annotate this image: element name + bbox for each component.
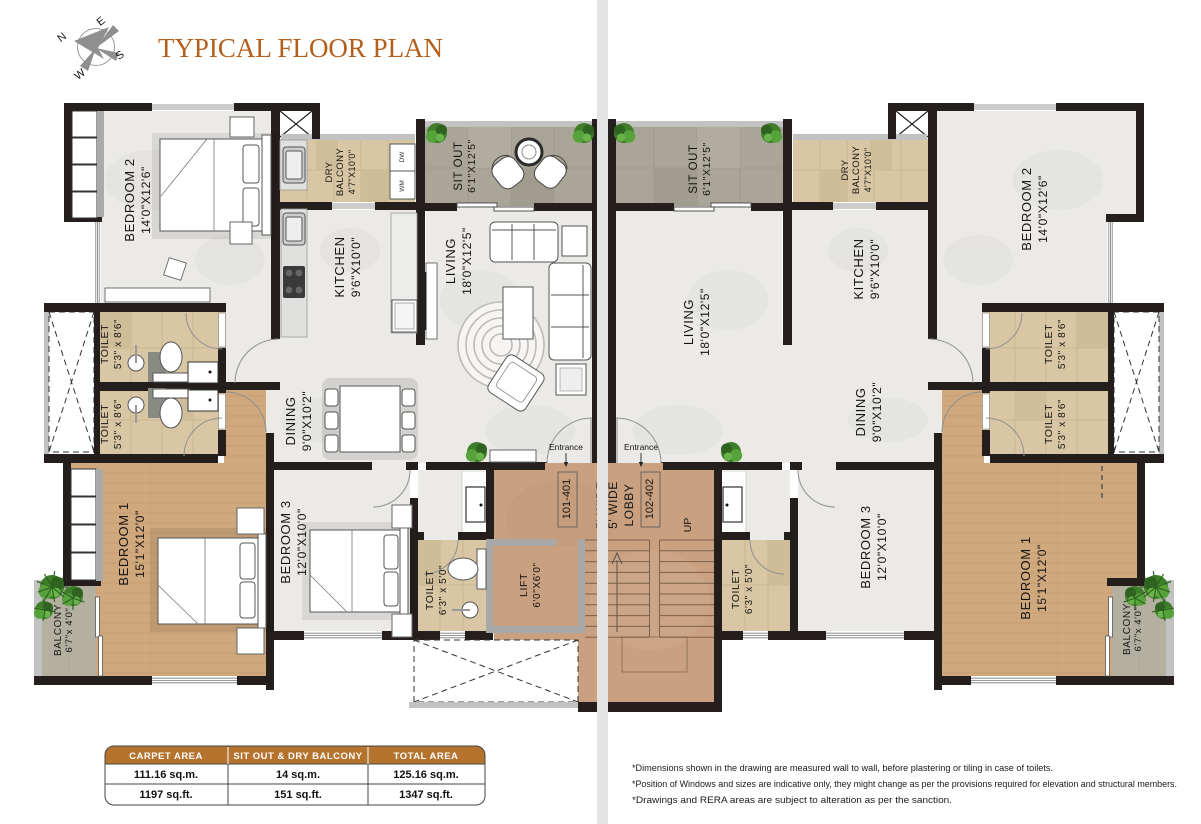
svg-text:Entrance: Entrance [624, 442, 658, 452]
svg-text:TOTAL AREA: TOTAL AREA [394, 751, 459, 762]
svg-text:SIT OUT & DRY BALCONY: SIT OUT & DRY BALCONY [233, 751, 362, 762]
svg-text:6'1"X12'5": 6'1"X12'5" [701, 142, 713, 196]
svg-text:LIVING: LIVING [443, 238, 458, 284]
svg-text:18'0"X12'5": 18'0"X12'5" [460, 227, 474, 295]
svg-text:DRY: DRY [324, 161, 335, 182]
svg-text:5'3" x 8'6": 5'3" x 8'6" [113, 319, 124, 369]
svg-text:*Position of Windows and sizes: *Position of Windows and sizes are indic… [632, 779, 1177, 789]
svg-text:102-402: 102-402 [644, 479, 656, 519]
svg-text:15'1"X12'0": 15'1"X12'0" [133, 510, 147, 578]
svg-text:14'0"X12'6": 14'0"X12'6" [1036, 175, 1050, 243]
svg-text:14'0"X12'6": 14'0"X12'6" [139, 166, 153, 234]
svg-text:9'6"X10'0": 9'6"X10'0" [868, 239, 882, 299]
svg-text:6'1"X12'5": 6'1"X12'5" [466, 139, 478, 193]
svg-text:*Dimensions shown in the drawi: *Dimensions shown in the drawing are mea… [632, 763, 1053, 773]
svg-text:14 sq.m.: 14 sq.m. [276, 769, 320, 781]
svg-text:TOILET: TOILET [730, 569, 742, 609]
svg-text:6'3" x 5'0": 6'3" x 5'0" [438, 565, 449, 615]
svg-text:5'3" x 8'6": 5'3" x 8'6" [1057, 399, 1068, 449]
svg-text:151 sq.ft.: 151 sq.ft. [274, 789, 322, 801]
svg-text:6'3" x 5'0": 6'3" x 5'0" [744, 564, 755, 614]
svg-text:BEDROOM 3: BEDROOM 3 [278, 500, 293, 583]
svg-text:5'3" x 8'6": 5'3" x 8'6" [113, 399, 124, 449]
svg-text:TOILET: TOILET [99, 324, 111, 364]
svg-text:TOILET: TOILET [1043, 324, 1055, 364]
svg-text:18'0"X12'5": 18'0"X12'5" [698, 288, 712, 356]
svg-text:SIT OUT: SIT OUT [453, 141, 465, 190]
svg-text:125.16 sq.m.: 125.16 sq.m. [393, 769, 458, 781]
svg-text:BALCONY: BALCONY [335, 148, 346, 196]
svg-text:9'6"X10'0": 9'6"X10'0" [349, 237, 363, 297]
svg-text:DRY: DRY [840, 159, 851, 180]
svg-text:12'0"X10'0": 12'0"X10'0" [875, 513, 889, 581]
svg-text:TOILET: TOILET [424, 570, 436, 610]
svg-text:9'0"X10'2": 9'0"X10'2" [300, 391, 314, 451]
svg-text:4'7"X10'0": 4'7"X10'0" [347, 150, 357, 195]
svg-text:LIVING: LIVING [681, 299, 696, 345]
svg-text:*Drawings and RERA areas are s: *Drawings and RERA areas are subject to … [632, 795, 952, 805]
svg-text:DW: DW [399, 151, 406, 163]
svg-text:5' WIDE: 5' WIDE [606, 481, 620, 529]
svg-text:SIT OUT: SIT OUT [688, 144, 700, 193]
svg-text:1347 sq.ft.: 1347 sq.ft. [399, 789, 453, 801]
svg-text:15'1"X12'0": 15'1"X12'0" [1035, 544, 1049, 612]
svg-text:TOILET: TOILET [99, 404, 111, 444]
svg-text:BEDROOM 1: BEDROOM 1 [116, 502, 131, 585]
svg-text:LOBBY: LOBBY [622, 483, 636, 526]
svg-text:Entrance: Entrance [549, 442, 583, 452]
svg-text:BALCONY: BALCONY [1122, 603, 1133, 655]
svg-text:WM: WM [399, 180, 406, 192]
svg-text:BEDROOM 1: BEDROOM 1 [1018, 536, 1033, 619]
svg-text:TOILET: TOILET [1043, 404, 1055, 444]
svg-text:6'7"x 4'0": 6'7"x 4'0" [64, 608, 75, 653]
svg-text:4'7"X10'0": 4'7"X10'0" [863, 148, 873, 193]
svg-text:BALCONY: BALCONY [53, 604, 64, 656]
svg-text:5'3" x 8'6": 5'3" x 8'6" [1057, 319, 1068, 369]
svg-text:TYPICAL FLOOR PLAN: TYPICAL FLOOR PLAN [158, 33, 445, 63]
svg-text:CARPET AREA: CARPET AREA [129, 751, 203, 762]
svg-text:1197 sq.ft.: 1197 sq.ft. [139, 789, 192, 801]
svg-text:9'0"X10'2": 9'0"X10'2" [870, 382, 884, 442]
svg-text:BEDROOM 3: BEDROOM 3 [858, 505, 873, 588]
svg-text:KITCHEN: KITCHEN [332, 236, 347, 297]
svg-text:111.16 sq.m.: 111.16 sq.m. [134, 769, 198, 781]
svg-text:101-401: 101-401 [561, 479, 573, 519]
svg-text:6'0"X6'0": 6'0"X6'0" [532, 562, 543, 607]
svg-text:LIFT: LIFT [518, 573, 530, 597]
svg-text:6'7"x 4'0": 6'7"x 4'0" [1133, 607, 1144, 652]
svg-text:DINING: DINING [853, 387, 868, 436]
svg-text:BEDROOM 2: BEDROOM 2 [1019, 167, 1034, 250]
svg-text:12'0"X10'0": 12'0"X10'0" [295, 508, 309, 576]
svg-text:KITCHEN: KITCHEN [851, 238, 866, 299]
svg-text:BEDROOM 2: BEDROOM 2 [122, 158, 137, 241]
svg-text:BALCONY: BALCONY [851, 146, 862, 194]
svg-text:UP: UP [682, 518, 694, 533]
svg-text:DINING: DINING [283, 396, 298, 445]
